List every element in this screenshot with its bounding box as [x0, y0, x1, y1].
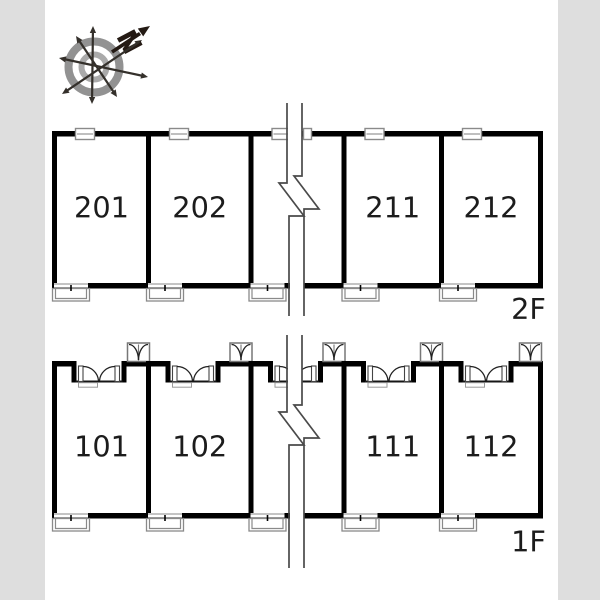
wall-vertical — [342, 361, 347, 519]
room-number-label: 202 — [172, 191, 227, 225]
door-leaf — [502, 366, 507, 382]
door-leaf — [466, 366, 471, 382]
wall-vertical — [538, 361, 543, 519]
wall-vertical — [538, 131, 543, 289]
notch-step-wall — [318, 361, 323, 383]
room-number-label: 111 — [365, 430, 420, 464]
door-leaf — [312, 366, 317, 382]
wall-vertical — [342, 131, 347, 289]
notch-step-wall — [122, 361, 127, 383]
door-leaf — [115, 366, 120, 382]
cut-gap — [288, 335, 302, 412]
room-number-label: 102 — [172, 430, 227, 464]
notch-step-wall — [361, 361, 366, 383]
room-number-label: 101 — [74, 430, 129, 464]
entry-mat — [368, 383, 387, 388]
floor-label: 2F — [511, 292, 546, 326]
room-number-label: 112 — [464, 430, 519, 464]
wall-vertical — [52, 361, 57, 519]
wall-vertical — [52, 131, 57, 289]
door-leaf — [79, 366, 84, 382]
notch-step-wall — [459, 361, 464, 383]
door-leaf — [173, 366, 178, 382]
door-leaf — [368, 366, 373, 382]
floor-label: 1F — [511, 525, 546, 559]
door-leaf — [209, 366, 214, 382]
wall-vertical — [146, 131, 151, 289]
floorplan-page: 2012022112122F1011021111121FN — [0, 0, 600, 600]
wall-vertical — [146, 361, 151, 519]
window-fragment — [304, 129, 312, 140]
notch-step-wall — [72, 361, 77, 383]
wall-vertical — [439, 131, 444, 289]
wall-vertical — [249, 361, 254, 519]
page-margin-left — [0, 0, 45, 600]
notch-step-wall — [216, 361, 221, 383]
cut-gap — [290, 445, 304, 568]
notch-step-wall — [166, 361, 171, 383]
door-leaf — [405, 366, 410, 382]
wall-vertical — [439, 361, 444, 519]
page-margin-right — [558, 0, 600, 600]
door-leaf — [275, 366, 280, 382]
notch-step-wall — [509, 361, 514, 383]
cut-gap — [290, 216, 304, 316]
entry-mat — [173, 383, 192, 388]
cut-gap — [288, 103, 302, 183]
room-number-label: 201 — [74, 191, 129, 225]
floorplan-drawing: 2012022112122F1011021111121FN — [0, 0, 600, 600]
wall-vertical — [249, 131, 254, 289]
entry-mat — [79, 383, 98, 388]
room-number-label: 212 — [464, 191, 519, 225]
room-number-label: 211 — [365, 191, 420, 225]
entry-mat — [466, 383, 485, 388]
notch-step-wall — [268, 361, 273, 383]
notch-step-wall — [411, 361, 416, 383]
